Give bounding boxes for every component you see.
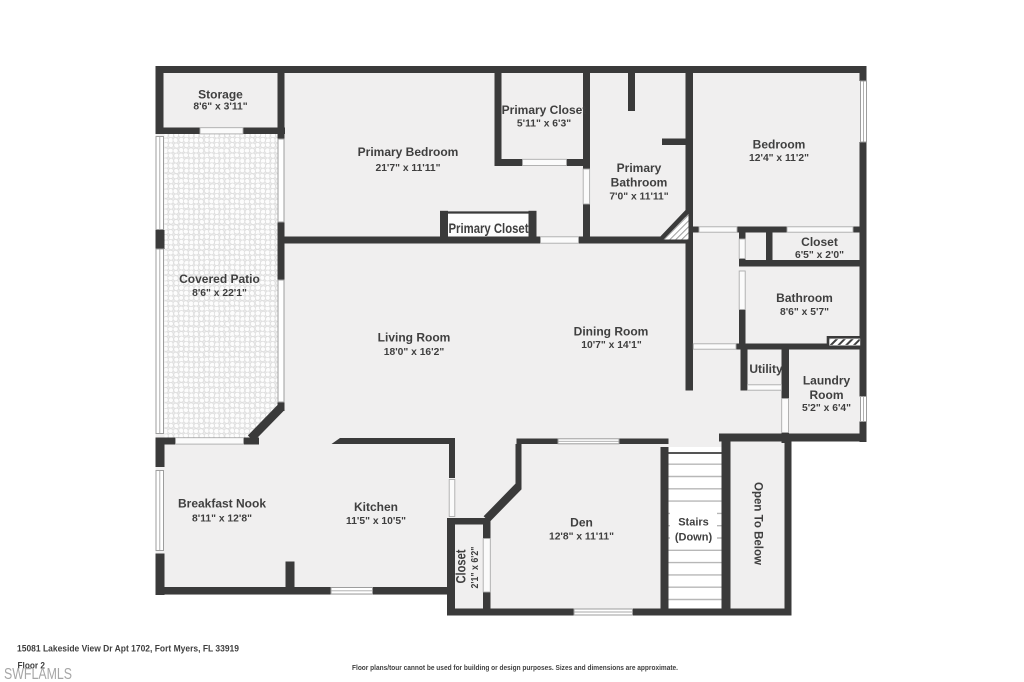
svg-text:Primary Bedroom: Primary Bedroom [358, 145, 459, 159]
svg-text:Den: Den [570, 516, 593, 530]
svg-text:6'5" x 2'0": 6'5" x 2'0" [795, 250, 844, 261]
svg-text:Kitchen: Kitchen [354, 500, 398, 514]
svg-text:Storage: Storage [198, 88, 243, 102]
svg-text:5'2" x 6'4": 5'2" x 6'4" [802, 403, 851, 414]
svg-text:21'7" x 11'11": 21'7" x 11'11" [375, 163, 440, 174]
svg-text:Utility: Utility [749, 362, 783, 376]
svg-text:8'6" x 5'7": 8'6" x 5'7" [780, 307, 829, 318]
svg-text:Primary Closet: Primary Closet [449, 220, 529, 236]
svg-text:12'4" x 11'2": 12'4" x 11'2" [749, 153, 809, 164]
svg-text:Floor plans/tour cannot be use: Floor plans/tour cannot be used for buil… [352, 665, 678, 672]
svg-text:(Down): (Down) [675, 531, 713, 543]
svg-text:2'1" x 6'2": 2'1" x 6'2" [470, 546, 481, 588]
svg-text:8'11" x 12'8": 8'11" x 12'8" [192, 514, 252, 525]
svg-text:Living Room: Living Room [378, 331, 451, 345]
svg-text:Dining Room: Dining Room [574, 325, 649, 339]
svg-text:12'8" x 11'11": 12'8" x 11'11" [549, 532, 614, 543]
svg-text:11'5" x 10'5": 11'5" x 10'5" [346, 516, 406, 527]
svg-text:Breakfast Nook: Breakfast Nook [178, 497, 266, 511]
svg-text:Bathroom: Bathroom [611, 176, 668, 190]
svg-text:Closet: Closet [453, 549, 469, 583]
svg-text:Primary: Primary [617, 161, 662, 175]
svg-text:Room: Room [810, 388, 844, 402]
svg-text:Stairs: Stairs [678, 517, 709, 529]
svg-text:Open To Below: Open To Below [752, 482, 766, 566]
svg-text:Bedroom: Bedroom [753, 138, 806, 152]
svg-text:5'11" x 6'3": 5'11" x 6'3" [517, 119, 571, 130]
svg-text:10'7" x 14'1": 10'7" x 14'1" [581, 340, 642, 351]
svg-text:SWFLAMLS: SWFLAMLS [4, 666, 72, 682]
svg-text:8'6" x 3'11": 8'6" x 3'11" [193, 102, 247, 113]
svg-text:Covered Patio: Covered Patio [179, 272, 260, 286]
svg-text:Laundry: Laundry [803, 374, 851, 388]
svg-text:15081 Lakeside View Dr Apt 170: 15081 Lakeside View Dr Apt 1702, Fort My… [17, 644, 239, 655]
svg-text:7'0" x 11'11": 7'0" x 11'11" [609, 191, 668, 202]
svg-text:18'0" x 16'2": 18'0" x 16'2" [384, 347, 445, 358]
svg-text:Primary Closet: Primary Closet [502, 103, 587, 117]
svg-text:8'6" x 22'1": 8'6" x 22'1" [192, 288, 247, 299]
svg-text:Bathroom: Bathroom [776, 291, 833, 305]
svg-text:Closet: Closet [801, 235, 838, 249]
